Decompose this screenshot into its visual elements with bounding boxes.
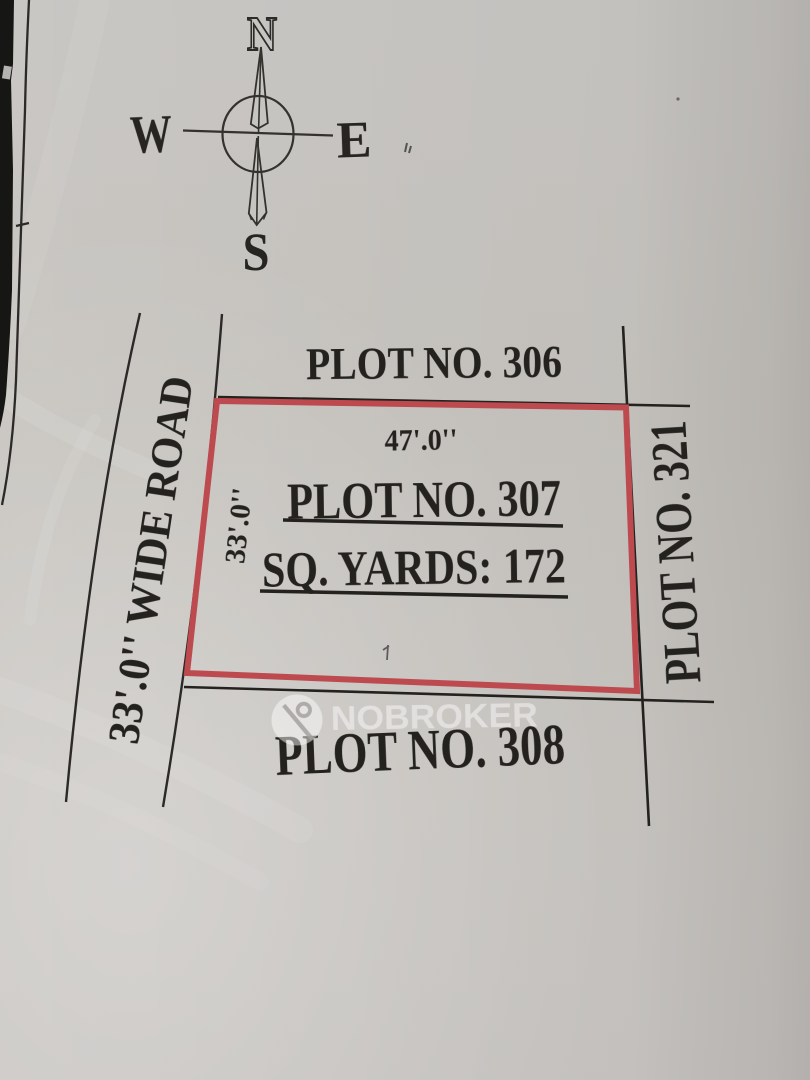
svg-text:NOBROKER: NOBROKER <box>330 697 538 738</box>
svg-text:N: N <box>247 7 277 61</box>
svg-text:SQ. YARDS: 172: SQ. YARDS: 172 <box>262 537 567 596</box>
svg-text:W: W <box>129 104 173 165</box>
svg-text:47'.0'': 47'.0'' <box>384 423 458 458</box>
svg-text:E: E <box>336 111 373 169</box>
svg-text:S: S <box>242 223 269 283</box>
svg-text:PLOT NO. 306: PLOT NO. 306 <box>306 337 562 390</box>
